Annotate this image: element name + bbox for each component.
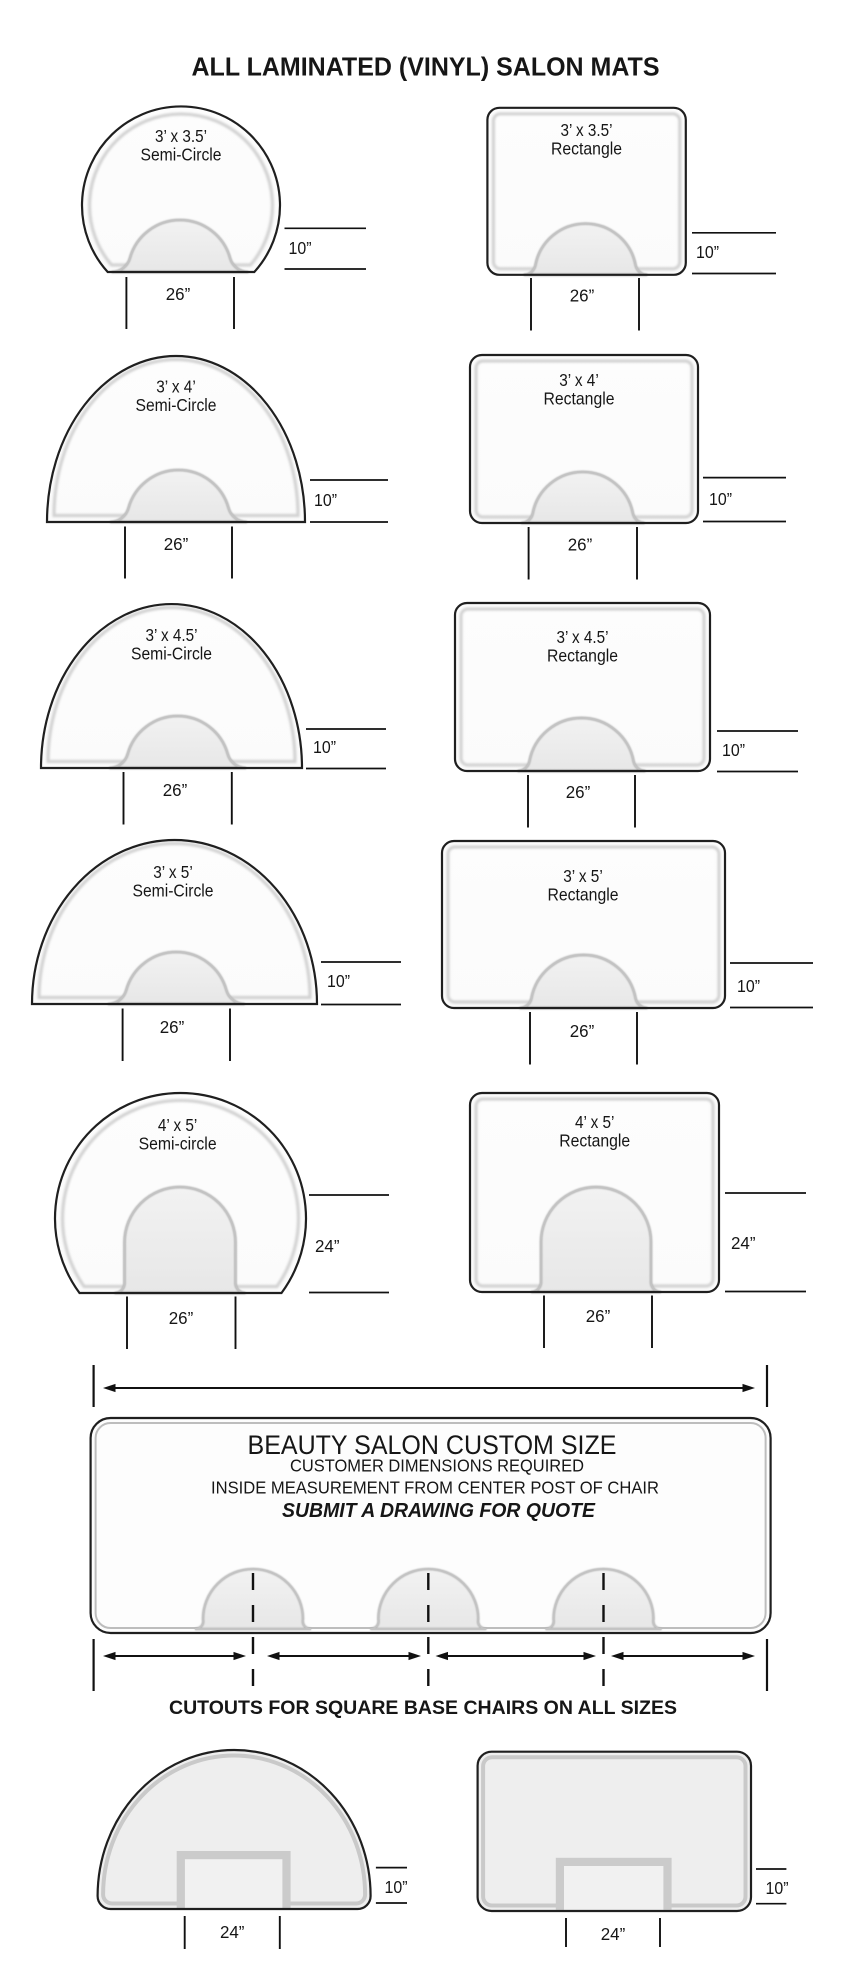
svg-text:Semi-Circle: Semi-Circle	[136, 395, 217, 415]
svg-text:3’ x 3.5’: 3’ x 3.5’	[561, 120, 613, 140]
svg-text:26”: 26”	[160, 1017, 185, 1037]
svg-text:Rectangle: Rectangle	[544, 389, 615, 409]
svg-text:10”: 10”	[289, 238, 312, 258]
svg-text:24”: 24”	[731, 1233, 756, 1253]
svg-text:3’ x 4.5’: 3’ x 4.5’	[557, 627, 609, 647]
svg-text:26”: 26”	[586, 1306, 611, 1326]
svg-text:26”: 26”	[166, 284, 191, 304]
svg-text:Semi-Circle: Semi-Circle	[133, 881, 214, 901]
svg-text:CUTOUTS FOR SQUARE BASE CHAIRS: CUTOUTS FOR SQUARE BASE CHAIRS ON ALL SI…	[169, 1697, 677, 1719]
svg-text:10”: 10”	[766, 1878, 789, 1898]
svg-text:10”: 10”	[314, 490, 337, 510]
svg-text:24”: 24”	[220, 1922, 245, 1942]
svg-text:3’ x 3.5’: 3’ x 3.5’	[155, 126, 207, 146]
svg-text:24”: 24”	[315, 1236, 340, 1256]
svg-text:3’ x 5’: 3’ x 5’	[563, 866, 603, 886]
svg-text:Semi-Circle: Semi-Circle	[141, 145, 222, 165]
svg-text:26”: 26”	[164, 534, 189, 554]
svg-text:26”: 26”	[163, 780, 188, 800]
svg-text:ALL LAMINATED (VINYL) SALON MA: ALL LAMINATED (VINYL) SALON MATS	[192, 52, 660, 82]
svg-text:10”: 10”	[709, 489, 732, 509]
svg-text:CUSTOMER DIMENSIONS REQUIRED: CUSTOMER DIMENSIONS REQUIRED	[290, 1456, 584, 1476]
svg-text:10”: 10”	[327, 971, 350, 991]
svg-text:Semi-Circle: Semi-Circle	[131, 644, 212, 664]
svg-text:26”: 26”	[570, 286, 595, 306]
svg-text:4’ x 5’: 4’ x 5’	[575, 1112, 615, 1132]
svg-text:Rectangle: Rectangle	[551, 139, 622, 159]
svg-text:Rectangle: Rectangle	[559, 1131, 630, 1151]
svg-text:3’ x 5’: 3’ x 5’	[153, 862, 193, 882]
svg-text:4’ x 5’: 4’ x 5’	[158, 1115, 198, 1135]
svg-text:26”: 26”	[568, 535, 593, 555]
svg-text:3’ x 4.5’: 3’ x 4.5’	[146, 625, 198, 645]
svg-text:10”: 10”	[696, 242, 719, 262]
svg-text:24”: 24”	[601, 1924, 626, 1944]
svg-text:Semi-circle: Semi-circle	[139, 1134, 217, 1154]
svg-text:26”: 26”	[566, 782, 591, 802]
svg-text:26”: 26”	[169, 1308, 194, 1328]
svg-text:26”: 26”	[570, 1021, 595, 1041]
svg-text:10”: 10”	[385, 1877, 408, 1897]
svg-text:10”: 10”	[722, 740, 745, 760]
svg-text:SUBMIT A DRAWING FOR QUOTE: SUBMIT A DRAWING FOR QUOTE	[282, 1499, 596, 1522]
svg-text:3’ x 4’: 3’ x 4’	[559, 370, 599, 390]
svg-text:10”: 10”	[313, 737, 336, 757]
svg-text:Rectangle: Rectangle	[548, 885, 619, 905]
svg-text:10”: 10”	[737, 976, 760, 996]
svg-text:3’ x 4’: 3’ x 4’	[156, 377, 196, 397]
svg-text:INSIDE MEASUREMENT FROM CENTER: INSIDE MEASUREMENT FROM CENTER POST OF C…	[211, 1478, 659, 1498]
svg-text:Rectangle: Rectangle	[547, 646, 618, 666]
